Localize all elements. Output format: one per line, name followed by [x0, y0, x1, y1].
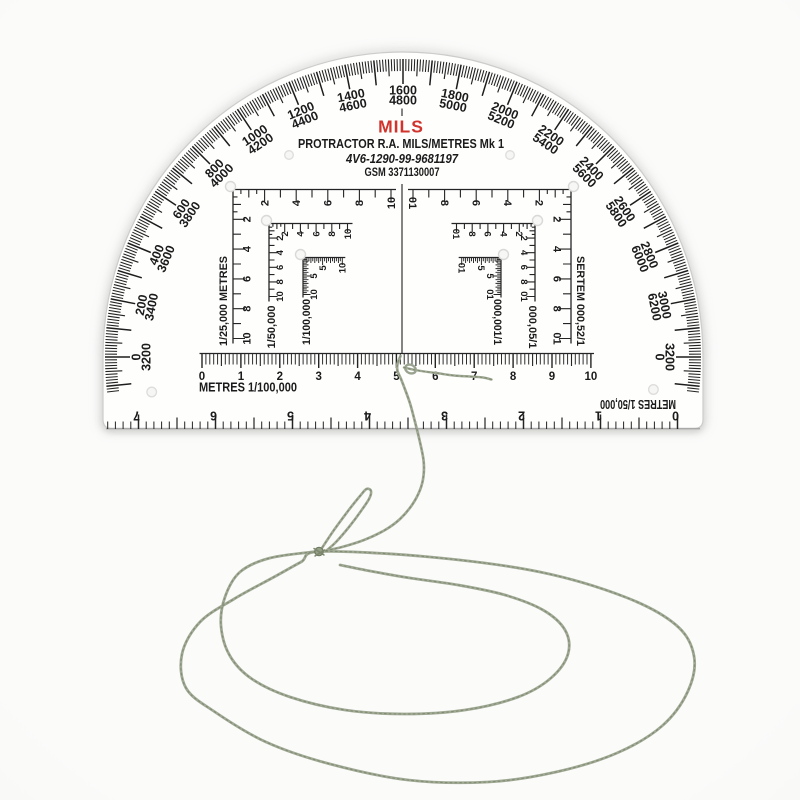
- svg-text:2: 2: [551, 216, 563, 222]
- svg-text:2: 2: [533, 200, 545, 206]
- svg-text:6: 6: [275, 265, 286, 270]
- svg-text:01: 01: [406, 197, 418, 209]
- svg-text:000,05/1: 000,05/1: [526, 306, 538, 349]
- svg-text:1/50,000: 1/50,000: [266, 306, 278, 349]
- svg-text:8: 8: [466, 231, 477, 236]
- svg-text:4: 4: [275, 249, 286, 255]
- svg-text:GSM 3371130007: GSM 3371130007: [365, 167, 440, 179]
- svg-text:6: 6: [469, 200, 481, 206]
- svg-text:4: 4: [497, 231, 508, 237]
- svg-text:1/100,000: 1/100,000: [301, 299, 313, 345]
- svg-text:4: 4: [291, 199, 303, 206]
- svg-text:8: 8: [275, 279, 286, 284]
- svg-text:METRES 1/100,000: METRES 1/100,000: [199, 381, 297, 395]
- svg-text:8: 8: [551, 306, 563, 312]
- svg-text:01: 01: [455, 263, 466, 274]
- svg-text:METRES 1/50,000: METRES 1/50,000: [600, 397, 676, 411]
- svg-text:01: 01: [450, 229, 461, 240]
- svg-text:4: 4: [241, 245, 253, 252]
- svg-text:10: 10: [338, 263, 349, 274]
- svg-text:2: 2: [275, 235, 286, 240]
- svg-text:5: 5: [318, 265, 329, 271]
- svg-text:2: 2: [518, 235, 529, 240]
- svg-text:4: 4: [501, 200, 513, 207]
- svg-text:10: 10: [241, 332, 253, 344]
- svg-text:000,001/1: 000,001/1: [491, 299, 503, 345]
- svg-text:0: 0: [652, 354, 666, 361]
- svg-text:4: 4: [354, 371, 361, 383]
- svg-text:2: 2: [241, 216, 253, 222]
- svg-text:6: 6: [210, 409, 217, 423]
- svg-text:8: 8: [354, 200, 366, 206]
- svg-text:SERTEM 000,52/1: SERTEM 000,52/1: [574, 256, 586, 346]
- svg-text:5: 5: [309, 273, 320, 279]
- svg-text:4V6-1290-99-9681197: 4V6-1290-99-9681197: [345, 151, 459, 166]
- svg-text:01: 01: [518, 291, 529, 302]
- svg-text:4: 4: [296, 231, 307, 237]
- svg-text:3: 3: [441, 409, 448, 423]
- svg-text:3200: 3200: [140, 343, 154, 371]
- svg-text:6: 6: [323, 200, 335, 206]
- svg-text:10: 10: [585, 371, 598, 383]
- svg-text:4: 4: [518, 250, 529, 256]
- svg-text:10: 10: [343, 229, 354, 240]
- svg-text:10: 10: [386, 197, 398, 209]
- svg-text:9: 9: [549, 371, 555, 383]
- svg-text:6: 6: [241, 276, 253, 282]
- svg-text:PROTRACTOR R.A. MILS/METRES Mk: PROTRACTOR R.A. MILS/METRES Mk 1: [298, 136, 504, 151]
- svg-text:8: 8: [241, 306, 253, 312]
- svg-text:8: 8: [438, 200, 450, 206]
- svg-text:8: 8: [518, 279, 529, 284]
- svg-text:6: 6: [311, 231, 322, 236]
- svg-text:4: 4: [364, 409, 371, 423]
- svg-text:2: 2: [259, 200, 271, 206]
- svg-text:6: 6: [551, 276, 563, 282]
- svg-text:1/25,000 METRES: 1/25,000 METRES: [218, 256, 230, 346]
- svg-text:10: 10: [275, 291, 286, 302]
- svg-text:8: 8: [510, 371, 517, 383]
- svg-text:8: 8: [327, 231, 338, 236]
- svg-text:7: 7: [133, 409, 140, 423]
- svg-text:10: 10: [309, 289, 320, 300]
- svg-text:MILS: MILS: [378, 117, 424, 137]
- svg-text:4800: 4800: [389, 94, 417, 108]
- svg-text:5: 5: [484, 273, 495, 279]
- svg-text:4: 4: [551, 246, 563, 253]
- svg-text:6: 6: [518, 265, 529, 270]
- svg-text:2: 2: [518, 409, 525, 423]
- svg-text:01: 01: [551, 332, 563, 344]
- svg-text:6: 6: [482, 231, 493, 236]
- svg-text:5: 5: [475, 265, 486, 271]
- svg-text:3: 3: [315, 371, 321, 383]
- svg-text:5: 5: [287, 409, 294, 423]
